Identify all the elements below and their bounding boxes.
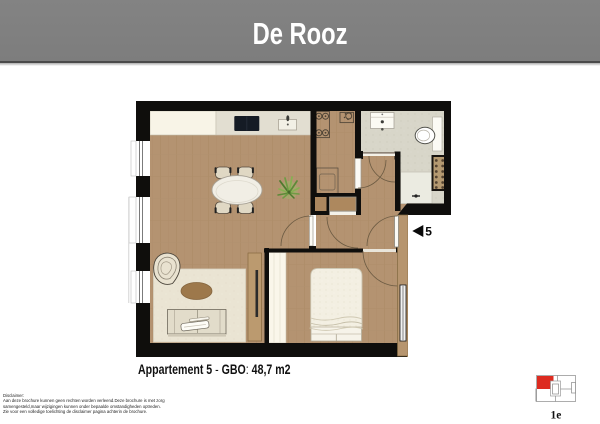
svg-text:1e: 1e [551, 410, 562, 422]
svg-text:5: 5 [425, 225, 432, 239]
